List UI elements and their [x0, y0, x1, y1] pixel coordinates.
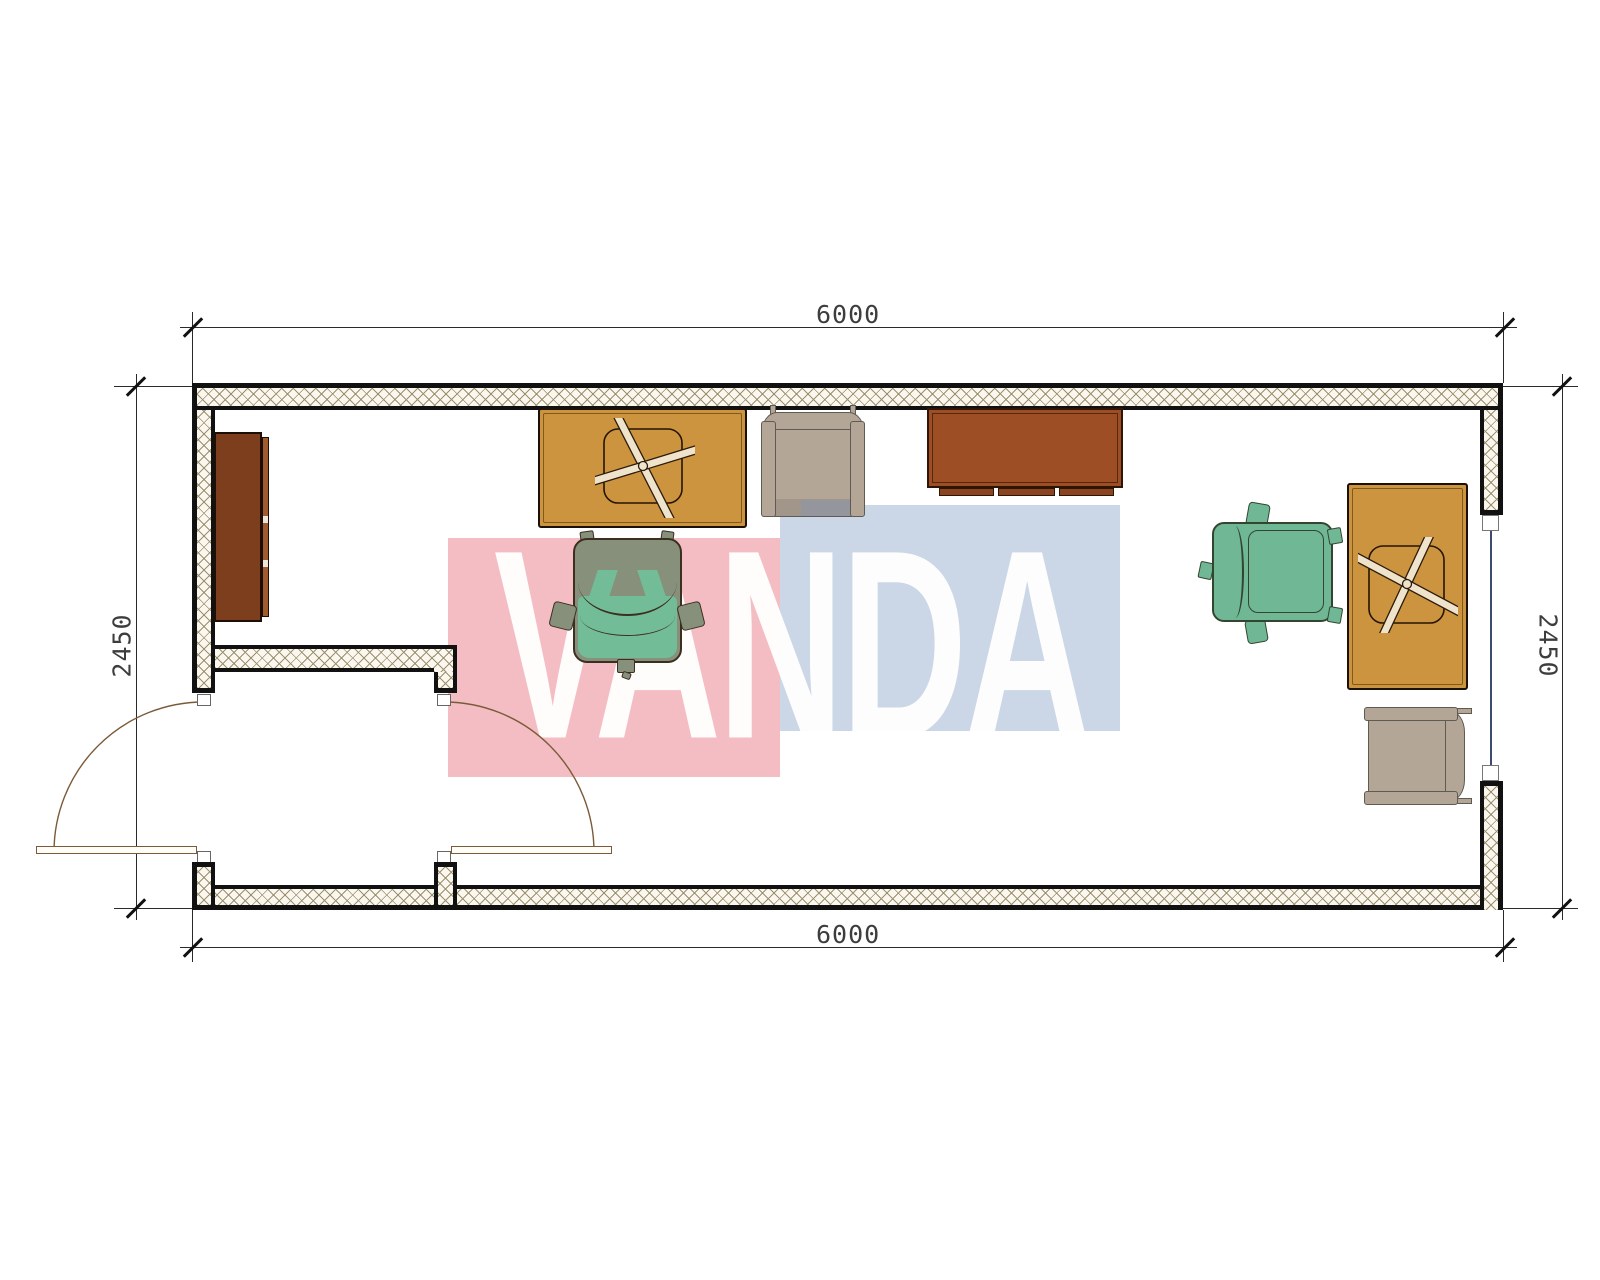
door-arc-left: [54, 702, 204, 852]
floor-plan-canvas: VANDA 6000 6000 2450 2450: [0, 0, 1600, 1280]
office-chair-middle: [551, 528, 703, 680]
window-sill-bottom: [1482, 765, 1499, 781]
chair-right-seat-outline: [1248, 530, 1324, 613]
desk-brown-foot-3: [1059, 488, 1114, 496]
armchair-right: [1356, 700, 1474, 812]
armchair-right-seat: [1368, 718, 1446, 794]
wall-right-lower: [1480, 781, 1503, 910]
door-leaf-left: [36, 846, 197, 854]
office-chair-right: [1196, 498, 1346, 648]
desk-brown-inner-line: [932, 413, 1118, 483]
cabinet-handle-2: [263, 560, 268, 567]
desk-brown-foot-2: [998, 488, 1055, 496]
wall-bottom-left-jamb: [192, 862, 215, 910]
wall-partition: [215, 645, 434, 672]
armchair-right-armrest-bottom: [1364, 791, 1458, 805]
armchair-top-armrest-left: [761, 421, 776, 517]
wall-right-upper: [1480, 410, 1503, 515]
armchair-right-armrest-top: [1364, 707, 1458, 721]
door-arc-right: [444, 702, 594, 852]
window-sill-top: [1482, 515, 1499, 531]
wall-bottom-threshold: [215, 885, 434, 910]
chair-right-caster-top: [1327, 527, 1344, 545]
desk-brown-foot-1: [939, 488, 994, 496]
chair-right-back-seam: [1222, 526, 1244, 618]
door-hinge-block-top-right: [437, 694, 451, 706]
wall-partition-jamb: [434, 672, 457, 693]
wall-bottom: [457, 885, 1503, 910]
desk-top-xbase-icon: [595, 418, 695, 518]
armchair-top-armrest-right: [850, 421, 865, 517]
armchair-top: [757, 403, 869, 521]
wall-partition-end: [434, 645, 457, 672]
cabinet-front-edge: [262, 437, 269, 617]
door-leaf-right: [451, 846, 612, 854]
desk-brown: [927, 408, 1123, 488]
cabinet-handle-1: [263, 516, 268, 523]
cabinet-body: [214, 432, 262, 622]
desk-right-xbase-icon: [1358, 537, 1458, 633]
window-glazing-line: [1490, 531, 1492, 765]
door-hinge-block-top-left: [197, 694, 211, 706]
wall-bottom-right-jamb: [434, 862, 457, 910]
wall-left: [192, 410, 215, 693]
chair-mid-armrest-right: [676, 600, 706, 631]
chair-right-caster-bottom: [1327, 606, 1344, 624]
